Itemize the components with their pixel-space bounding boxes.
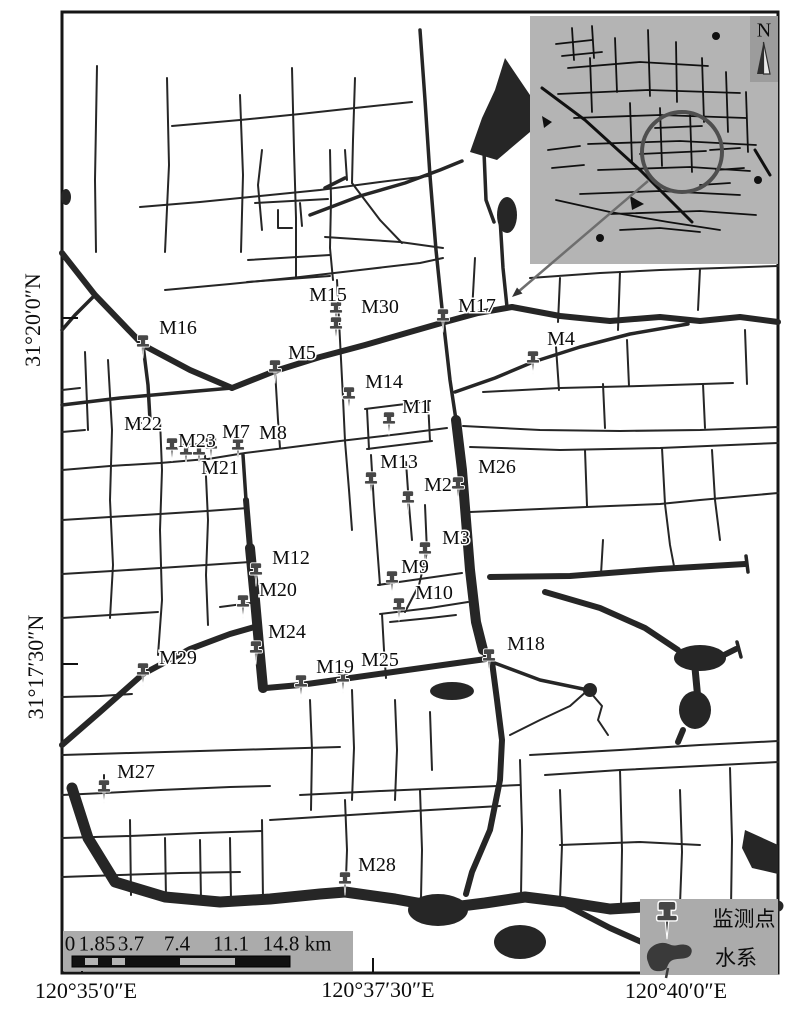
monitoring-point-label-M27: M27 xyxy=(117,761,155,783)
scalebar-tick-0: 0 xyxy=(65,932,76,957)
legend-label-water-system: 水系 xyxy=(715,942,757,972)
monitoring-point-label-M13: M13 xyxy=(380,451,418,473)
monitoring-point-label-M15: M15 xyxy=(309,284,347,306)
north-label: N xyxy=(757,20,771,43)
monitoring-point-label-M19: M19 xyxy=(316,656,354,678)
scalebar-tick-3: 7.4 xyxy=(164,932,190,957)
monitoring-point-label-M4: M4 xyxy=(547,328,575,350)
figure-monitoring-map: M1M2M3M4M5M7M8M9M10M12M13M14M15M16M17M18… xyxy=(0,0,800,1016)
lon-axis-label-east: 120°40′0″E xyxy=(625,978,727,1004)
monitoring-point-label-M8: M8 xyxy=(259,422,287,444)
monitoring-point-label-M21: M21 xyxy=(201,457,239,479)
monitoring-point-label-M23: M23 xyxy=(178,430,216,452)
monitoring-point-label-M9: M9 xyxy=(401,556,429,578)
monitoring-point-label-M16: M16 xyxy=(159,317,197,339)
scalebar-tick-4: 11.1 xyxy=(213,932,249,957)
monitoring-point-label-M10: M10 xyxy=(415,582,453,604)
monitoring-point-label-M5: M5 xyxy=(288,342,316,364)
monitoring-point-label-M20: M20 xyxy=(259,579,297,601)
scalebar-tick-5: 14.8 xyxy=(263,932,300,957)
monitoring-point-label-M14: M14 xyxy=(365,371,403,393)
monitoring-point-label-M24: M24 xyxy=(268,621,306,643)
monitoring-point-label-M3: M3 xyxy=(442,527,470,549)
scalebar-unit: km xyxy=(305,932,332,957)
lat-axis-label-north: 31°20′0″N xyxy=(20,273,46,367)
monitoring-point-label-M1: M1 xyxy=(402,396,430,418)
monitoring-point-label-M25: M25 xyxy=(361,649,399,671)
lon-axis-label-middle: 120°37′30″E xyxy=(321,977,434,1003)
monitoring-point-label-M30: M30 xyxy=(361,296,399,318)
monitoring-point-label-M7: M7 xyxy=(222,421,250,443)
monitoring-point-label-M12: M12 xyxy=(272,547,310,569)
monitoring-point-label-M28: M28 xyxy=(358,854,396,876)
monitoring-point-label-M2: M2 xyxy=(424,474,452,496)
monitoring-point-label-M26: M26 xyxy=(478,456,516,478)
map-canvas: M1M2M3M4M5M7M8M9M10M12M13M14M15M16M17M18… xyxy=(0,0,800,1016)
monitoring-point-label-M17: M17 xyxy=(458,295,496,317)
scalebar-tick-1: 1.85 xyxy=(79,932,116,957)
legend-label-monitoring-point: 监测点 xyxy=(713,903,776,933)
lon-axis-label-west: 120°35′0″E xyxy=(35,978,137,1004)
lat-axis-label-south: 31°17′30″N xyxy=(23,615,49,720)
inset-overview-map xyxy=(530,16,778,264)
monitoring-point-label-M18: M18 xyxy=(507,633,545,655)
monitoring-point-label-M22: M22 xyxy=(124,413,162,435)
scalebar-tick-2: 3.7 xyxy=(118,932,144,957)
monitoring-point-label-M29: M29 xyxy=(159,647,197,669)
